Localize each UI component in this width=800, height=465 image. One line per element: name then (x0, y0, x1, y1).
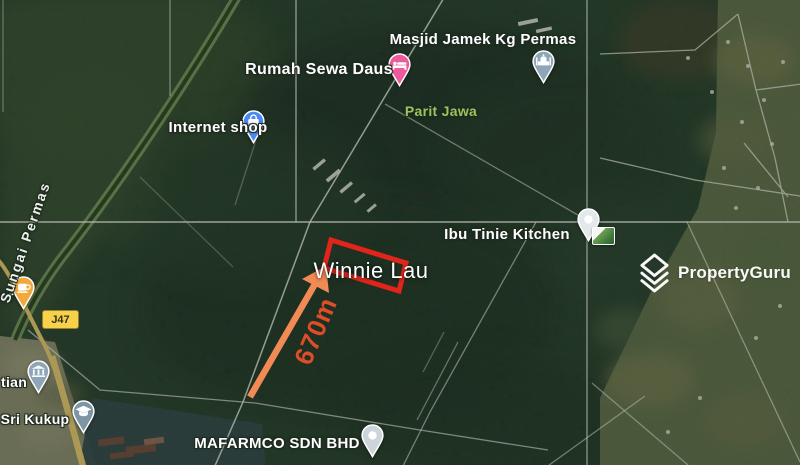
propertyguru-logo-icon (638, 252, 671, 293)
school-pin-icon[interactable] (71, 400, 96, 434)
label-mafarmco[interactable]: MAFARMCO SDN BHD (194, 435, 360, 452)
propertyguru-brand-text: PropertyGuru (678, 263, 791, 283)
label-masjid-jamek[interactable]: Masjid Jamek Kg Permas (390, 31, 577, 48)
mosque-pin-icon[interactable] (531, 50, 556, 84)
dot-glyph (584, 215, 592, 223)
label-partial-tian: tian (1, 374, 27, 390)
label-parit-jawa[interactable]: Parit Jawa (405, 103, 477, 119)
label-sri-kukup[interactable]: Sri Kukup (1, 411, 70, 427)
place-pin-icon[interactable] (360, 424, 385, 458)
propertyguru-watermark: PropertyGuru (638, 252, 791, 293)
label-rumah-sewa[interactable]: Rumah Sewa Daus (245, 61, 393, 79)
annotation-name: Winnie Lau (313, 258, 428, 284)
map-screenshot: Masjid Jamek Kg Permas Rumah Sewa Daus I… (0, 0, 800, 465)
civic-building-pin-icon[interactable] (26, 360, 51, 394)
road-badge-j47: J47 (42, 310, 79, 329)
dot-glyph (368, 431, 376, 439)
label-ibu-tinie[interactable]: Ibu Tinie Kitchen (444, 226, 570, 243)
label-internet-shop[interactable]: Internet shop (169, 119, 268, 136)
photo-thumbnail-icon[interactable] (592, 227, 615, 245)
